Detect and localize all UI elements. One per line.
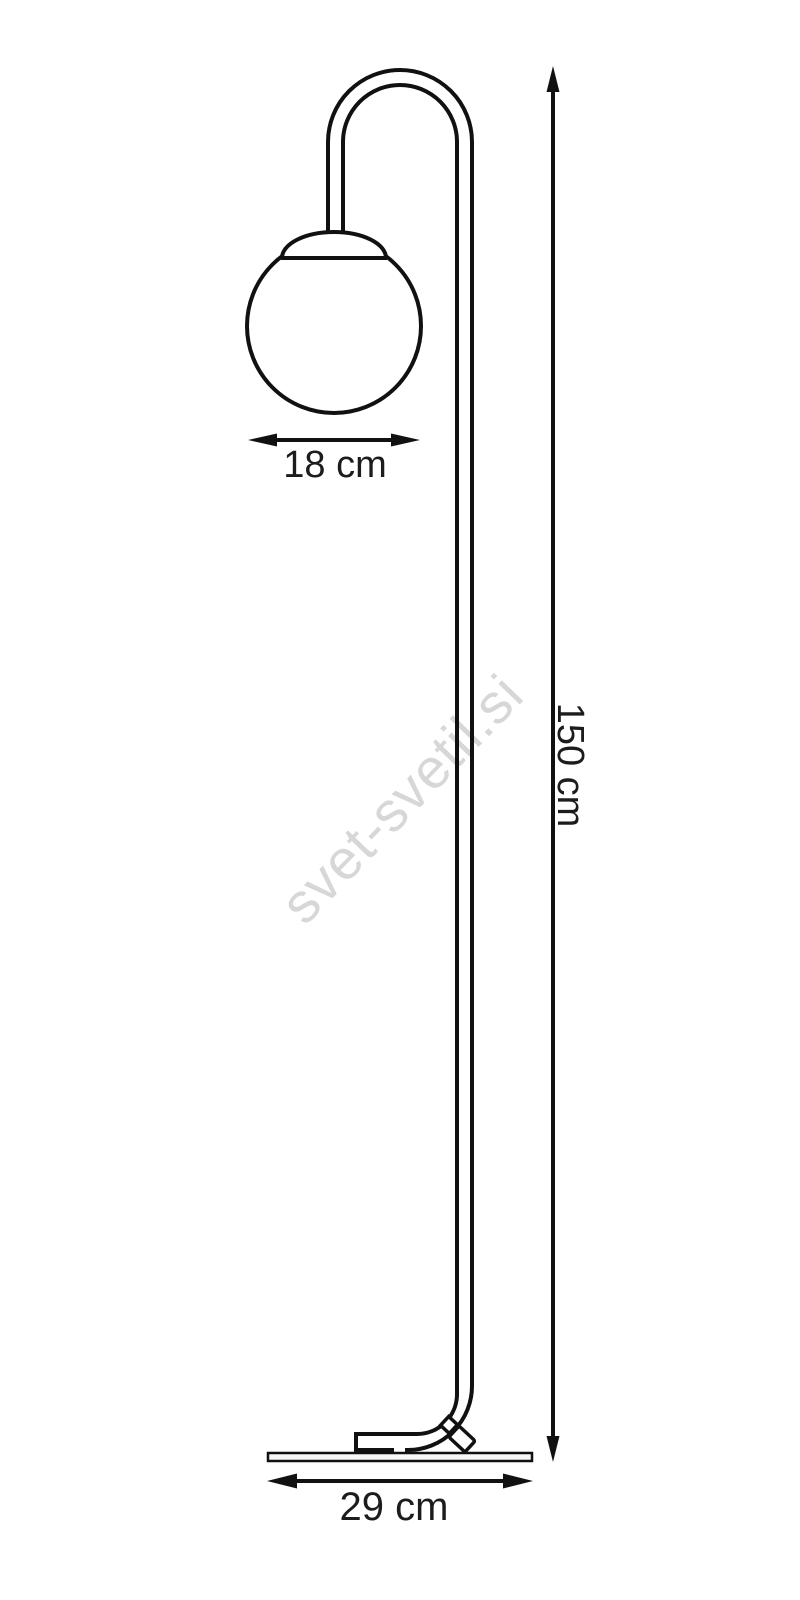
arrowhead-down-icon <box>547 1436 560 1462</box>
diagram-canvas: svet-svetil.si <box>0 0 800 1600</box>
arrowhead-left-icon <box>248 434 277 447</box>
globe-width-label: 18 cm <box>235 446 435 484</box>
base-plate <box>268 1453 532 1461</box>
arrowhead-right-icon <box>503 1474 533 1489</box>
lamp-dimension-drawing <box>0 0 800 1600</box>
arrowhead-left-icon <box>267 1474 297 1489</box>
arrowhead-right-icon <box>391 434 420 447</box>
base-width-label: 29 cm <box>294 1487 494 1527</box>
lamp-globe-cap <box>282 232 386 258</box>
height-label: 150 cm <box>551 665 589 865</box>
lamp-globe <box>247 239 421 413</box>
arrowhead-up-icon <box>547 66 560 92</box>
